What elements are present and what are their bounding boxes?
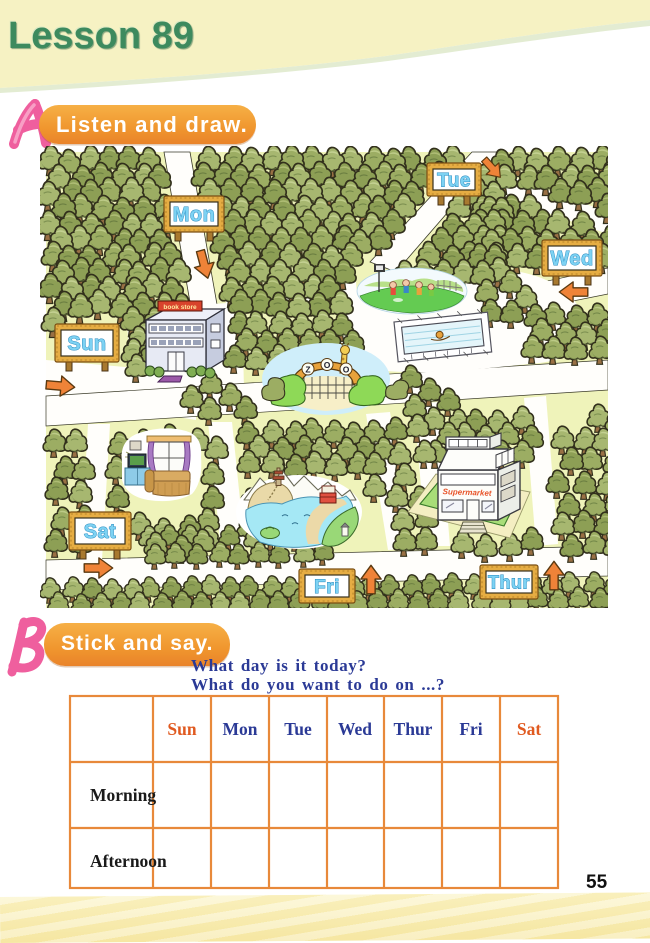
svg-text:Sat: Sat <box>84 521 117 543</box>
svg-text:Supermarket: Supermarket <box>442 487 492 498</box>
svg-text:Sun: Sun <box>167 719 196 739</box>
svg-text:Mon: Mon <box>173 204 216 226</box>
svg-text:Z: Z <box>305 365 310 375</box>
svg-text:Tue: Tue <box>437 170 471 191</box>
svg-text:O: O <box>343 365 350 375</box>
svg-text:Wed: Wed <box>550 248 593 270</box>
svg-text:book store: book store <box>163 304 197 311</box>
svg-text:Sun: Sun <box>67 333 106 355</box>
svg-text:Tue: Tue <box>284 719 312 739</box>
svg-text:Morning: Morning <box>90 785 156 805</box>
svg-text:Mon: Mon <box>223 719 258 739</box>
svg-text:Thur: Thur <box>488 572 530 592</box>
svg-text:Thur: Thur <box>394 719 433 739</box>
svg-text:Sat: Sat <box>517 719 541 739</box>
svg-text:Fri: Fri <box>459 719 482 739</box>
svg-text:Afternoon: Afternoon <box>90 851 167 871</box>
svg-text:Wed: Wed <box>338 719 372 739</box>
svg-text:Fri: Fri <box>314 577 340 598</box>
svg-text:O: O <box>324 360 331 370</box>
